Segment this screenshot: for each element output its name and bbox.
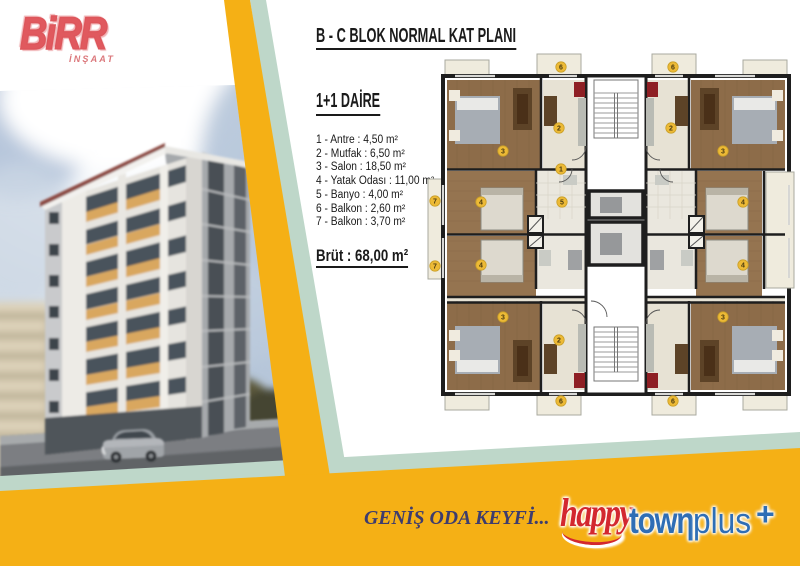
svg-text:6: 6 xyxy=(671,65,675,72)
svg-text:7: 7 xyxy=(433,199,437,206)
svg-text:7: 7 xyxy=(433,264,437,271)
svg-text:5: 5 xyxy=(560,200,564,207)
svg-text:4: 4 xyxy=(479,200,483,207)
svg-text:6: 6 xyxy=(559,65,563,72)
svg-text:3: 3 xyxy=(721,149,725,156)
svg-text:3: 3 xyxy=(501,149,505,156)
svg-text:1: 1 xyxy=(559,167,563,174)
svg-text:2: 2 xyxy=(669,126,673,133)
svg-text:3: 3 xyxy=(501,315,505,322)
svg-text:6: 6 xyxy=(671,399,675,406)
svg-text:2: 2 xyxy=(557,338,561,345)
svg-text:6: 6 xyxy=(559,399,563,406)
svg-text:4: 4 xyxy=(741,200,745,207)
svg-text:2: 2 xyxy=(557,126,561,133)
svg-text:4: 4 xyxy=(479,263,483,270)
svg-text:3: 3 xyxy=(721,315,725,322)
svg-text:4: 4 xyxy=(741,263,745,270)
